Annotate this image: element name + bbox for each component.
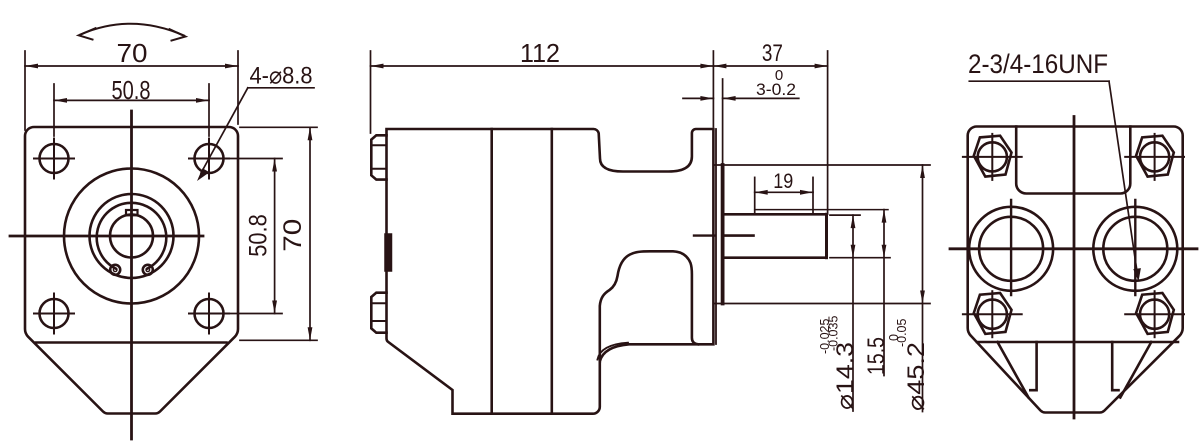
svg-text:70: 70 <box>117 38 148 68</box>
svg-text:50.8: 50.8 <box>112 75 151 105</box>
svg-text:37: 37 <box>762 40 783 67</box>
svg-text:2-3/4-16UNF: 2-3/4-16UNF <box>968 49 1108 79</box>
svg-text:⌀45.20-0.05: ⌀45.20-0.05 <box>887 319 930 411</box>
svg-text:4-⌀8.8: 4-⌀8.8 <box>250 63 313 90</box>
svg-text:15.5: 15.5 <box>863 337 890 375</box>
svg-text:0: 0 <box>775 67 783 84</box>
svg-text:70: 70 <box>279 219 307 252</box>
svg-text:19: 19 <box>773 170 793 193</box>
svg-text:112: 112 <box>520 38 560 68</box>
svg-text:50.8: 50.8 <box>245 214 273 257</box>
